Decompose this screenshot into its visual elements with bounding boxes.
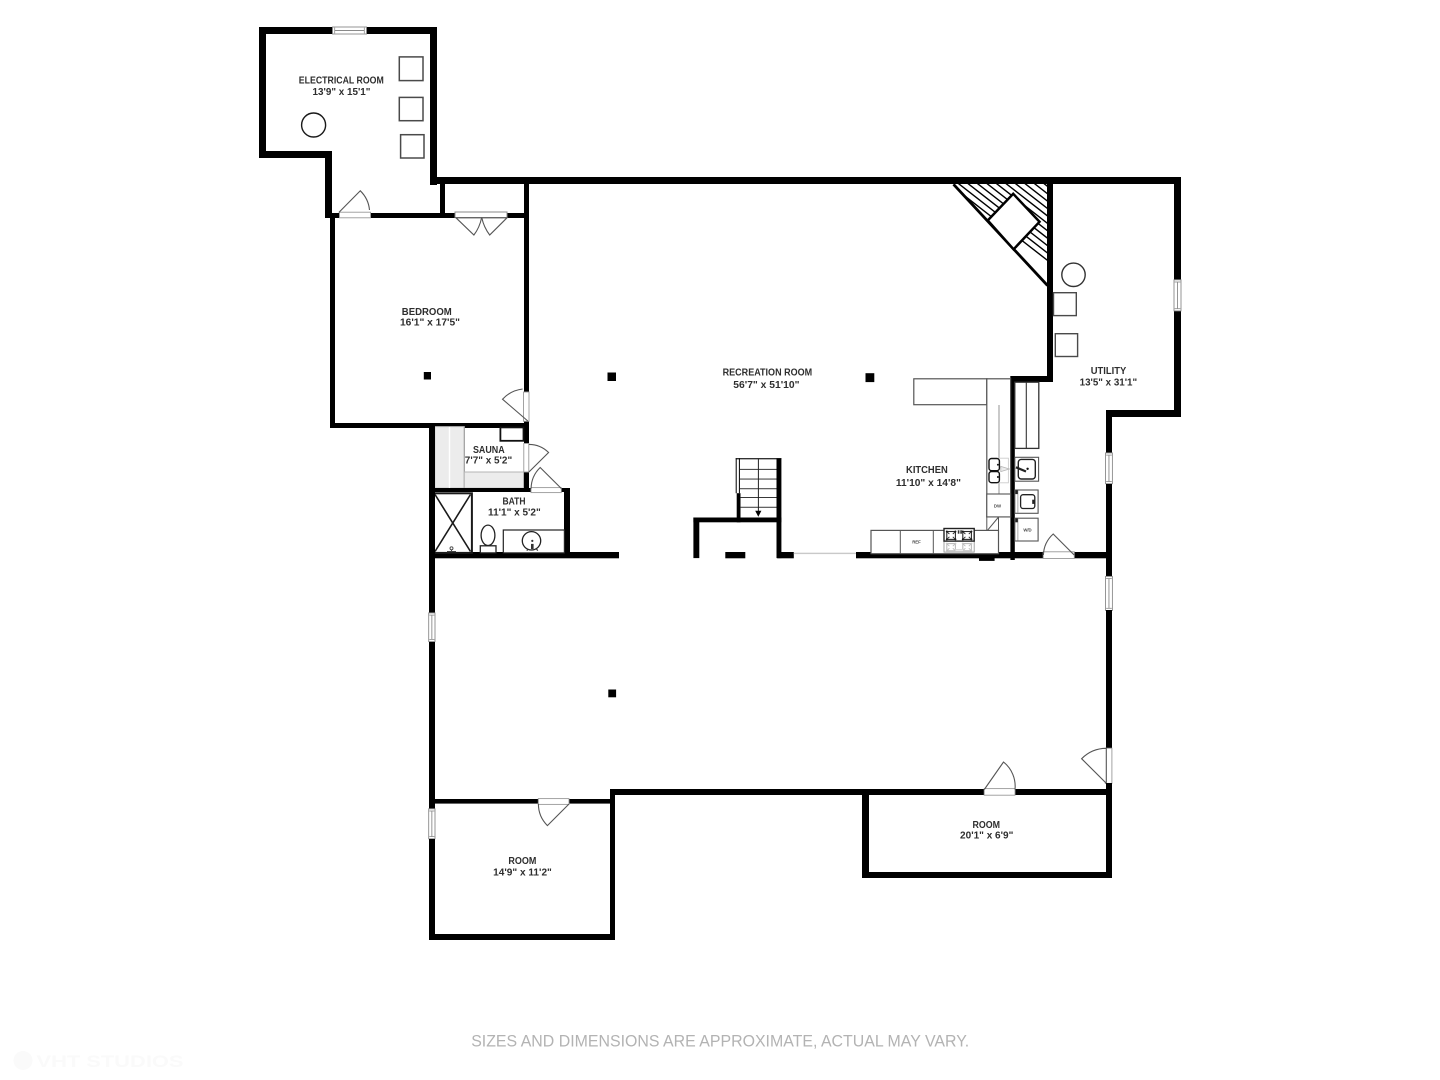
svg-text:ELECTRICAL ROOM: ELECTRICAL ROOM xyxy=(299,75,384,86)
svg-text:16'1" x 17'5": 16'1" x 17'5" xyxy=(400,318,460,329)
svg-text:BATH: BATH xyxy=(503,497,526,508)
svg-text:ROOM: ROOM xyxy=(973,820,1001,831)
svg-text:ROOM: ROOM xyxy=(508,856,536,867)
svg-text:BEDROOM: BEDROOM xyxy=(402,307,452,318)
svg-text:REF: REF xyxy=(912,540,921,545)
svg-text:KITCHEN: KITCHEN xyxy=(906,465,948,476)
svg-text:7'7" x 5'2": 7'7" x 5'2" xyxy=(465,456,512,467)
svg-text:VHT STUDIOS: VHT STUDIOS xyxy=(37,1052,184,1071)
svg-text:11'10" x 14'8": 11'10" x 14'8" xyxy=(896,478,961,489)
svg-text:11'1" x 5'2": 11'1" x 5'2" xyxy=(488,508,541,519)
svg-text:SAUNA: SAUNA xyxy=(473,445,505,456)
svg-text:13'9" x 15'1": 13'9" x 15'1" xyxy=(313,87,371,98)
svg-text:DW: DW xyxy=(994,504,1002,509)
svg-text:14'9" x 11'2": 14'9" x 11'2" xyxy=(493,868,552,879)
svg-text:SIZES AND DIMENSIONS ARE APPRO: SIZES AND DIMENSIONS ARE APPROXIMATE, AC… xyxy=(471,1033,969,1051)
svg-text:13'5" x 31'1": 13'5" x 31'1" xyxy=(1080,377,1138,388)
svg-text:UTILITY: UTILITY xyxy=(1091,366,1127,377)
svg-text:W/D: W/D xyxy=(1023,528,1031,533)
svg-text:56'7" x 51'10": 56'7" x 51'10" xyxy=(733,380,799,391)
svg-text:20'1" x 6'9": 20'1" x 6'9" xyxy=(960,830,1013,841)
svg-text:RECREATION ROOM: RECREATION ROOM xyxy=(723,368,813,379)
